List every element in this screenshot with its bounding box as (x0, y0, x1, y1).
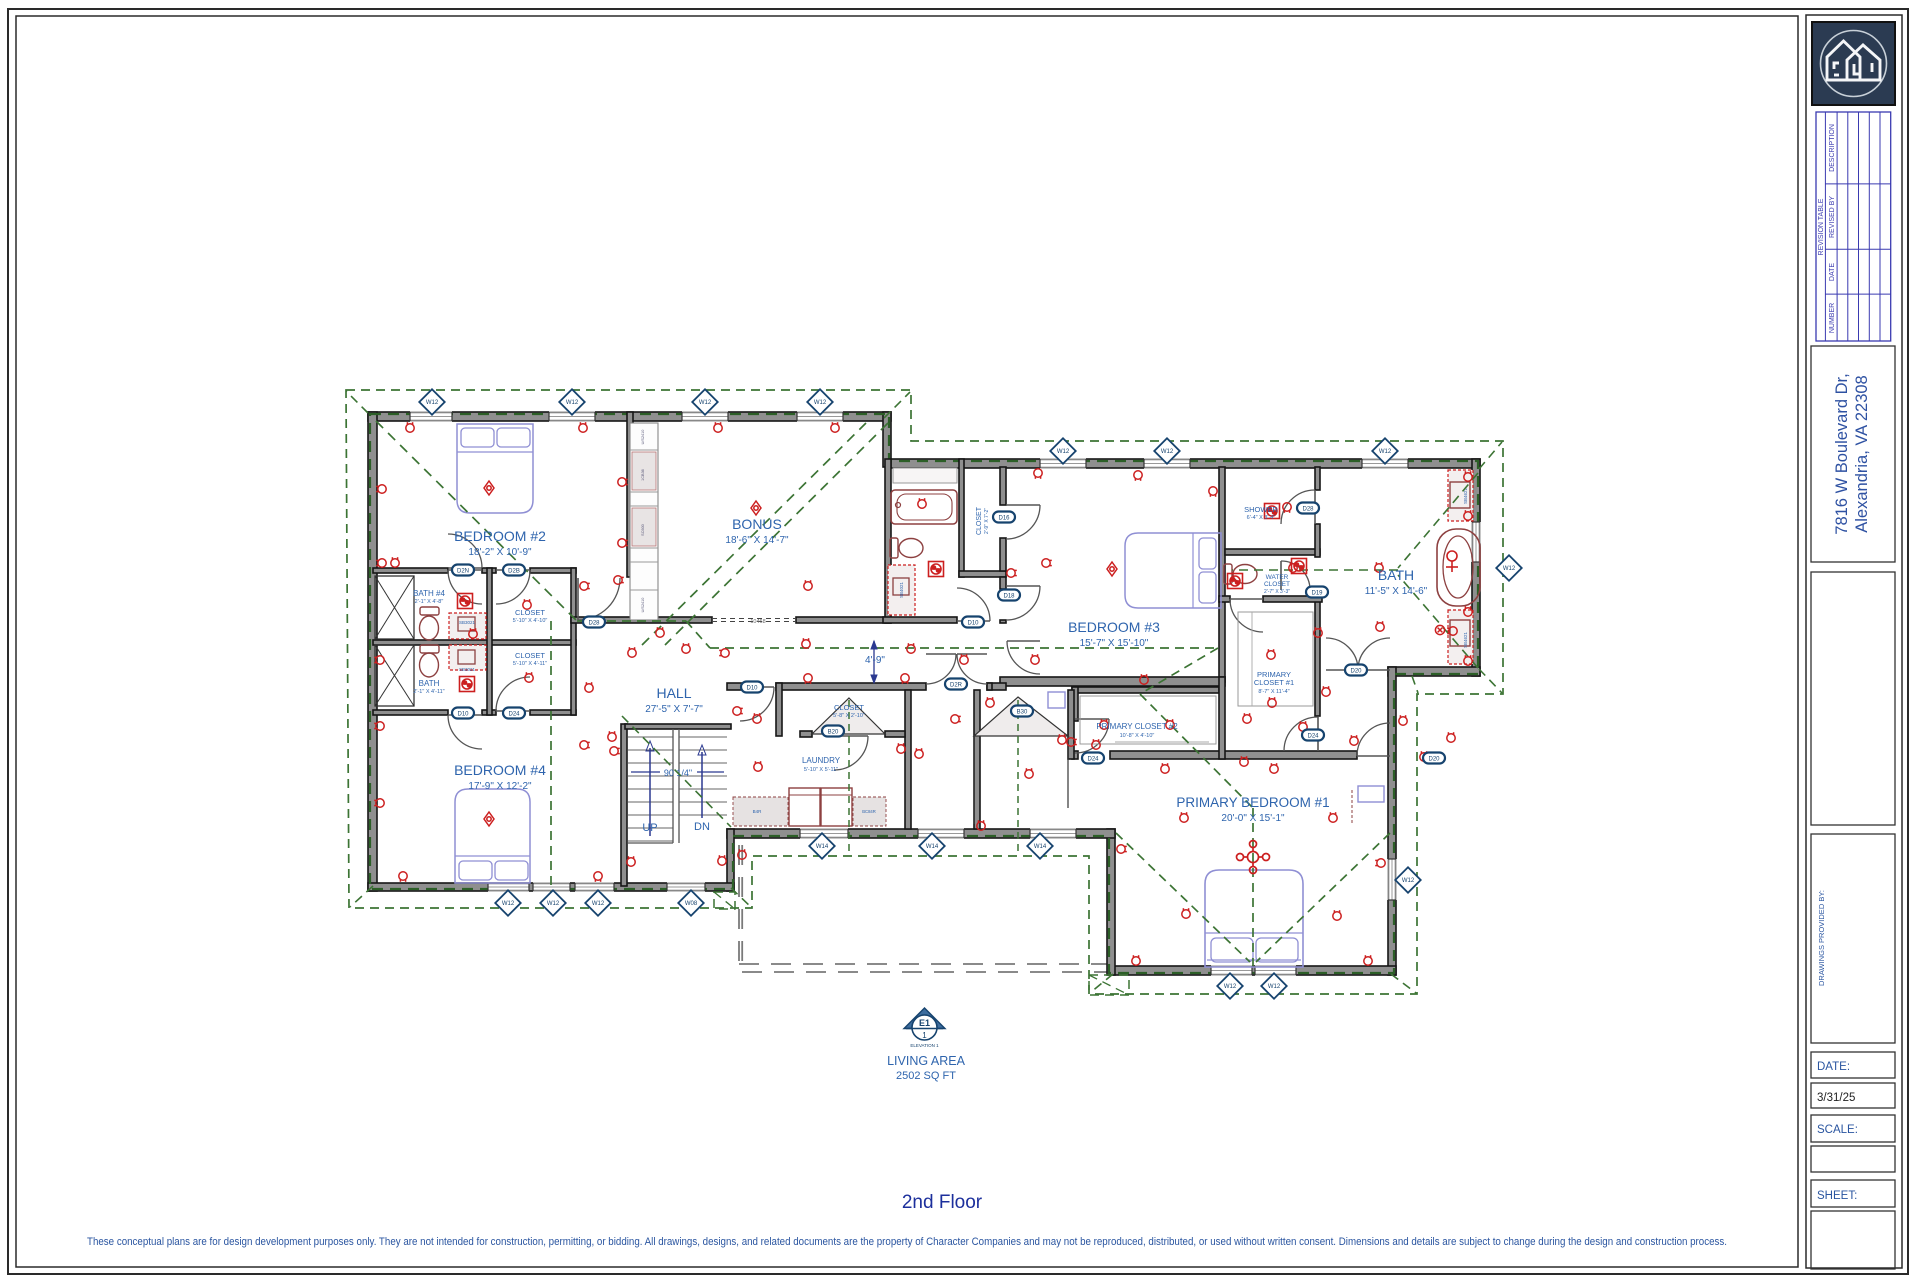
svg-text:W12: W12 (1057, 449, 1070, 455)
svg-text:2502 SQ FT: 2502 SQ FT (896, 1070, 956, 1082)
svg-text:D18: D18 (1003, 594, 1015, 600)
svg-text:BATH: BATH (1378, 567, 1414, 583)
svg-text:E1: E1 (919, 1018, 930, 1028)
svg-text:SHOWER: SHOWER (1244, 505, 1278, 514)
svg-text:W12: W12 (547, 901, 560, 907)
svg-text:B30: B30 (1017, 710, 1028, 716)
svg-text:HALL: HALL (656, 685, 691, 701)
svg-text:W12: W12 (426, 400, 439, 406)
svg-text:2nd Floor: 2nd Floor (902, 1192, 983, 1213)
svg-text:6'-4" X 3'-4": 6'-4" X 3'-4" (1247, 515, 1276, 521)
svg-text:U/S2410: U/S2410 (641, 598, 645, 613)
svg-text:W14: W14 (1034, 844, 1047, 850)
svg-text:W12: W12 (1268, 984, 1281, 990)
svg-text:D19: D19 (1311, 591, 1323, 597)
svg-text:7816 W Boulevard Dr,: 7816 W Boulevard Dr, (1833, 373, 1851, 534)
svg-text:5'-8" X 2'-10": 5'-8" X 2'-10" (833, 713, 865, 719)
svg-text:10468: 10468 (750, 619, 765, 625)
svg-text:18'-2" X 10'-9": 18'-2" X 10'-9" (468, 547, 532, 558)
svg-text:11'-5" X 14'-6": 11'-5" X 14'-6" (1365, 586, 1428, 597)
svg-text:These conceptual plans are for: These conceptual plans are for design de… (87, 1236, 1727, 1248)
svg-text:CLOSET #1: CLOSET #1 (1254, 678, 1294, 687)
svg-text:DN: DN (694, 821, 710, 833)
svg-text:5'-10" X 4'-10": 5'-10" X 4'-10" (513, 618, 548, 624)
svg-text:SB4621: SB4621 (1463, 631, 1468, 648)
svg-text:W14: W14 (816, 844, 829, 850)
svg-text:BEDROOM #3: BEDROOM #3 (1068, 619, 1160, 635)
svg-text:D10: D10 (457, 712, 469, 718)
svg-text:18'-6" X 14'-7": 18'-6" X 14'-7" (725, 535, 789, 546)
svg-text:W12: W12 (1402, 878, 1415, 884)
svg-text:W08: W08 (685, 901, 698, 907)
svg-text:BONUS: BONUS (732, 516, 782, 532)
svg-text:W12: W12 (1224, 984, 1237, 990)
svg-text:W12: W12 (814, 400, 827, 406)
svg-text:BATH: BATH (419, 679, 440, 688)
svg-text:3/31/25: 3/31/25 (1817, 1092, 1855, 1104)
svg-text:SB4021: SB4021 (899, 581, 904, 598)
svg-text:1: 1 (922, 1031, 927, 1040)
svg-text:LIVING AREA: LIVING AREA (887, 1054, 965, 1068)
svg-text:W12: W12 (699, 400, 712, 406)
svg-text:BEDROOM #2: BEDROOM #2 (454, 528, 546, 544)
svg-text:10'-8" X 4'-10": 10'-8" X 4'-10" (1120, 733, 1155, 739)
svg-text:17'-9" X 12'-2": 17'-9" X 12'-2" (468, 781, 532, 792)
svg-text:D10: D10 (967, 621, 979, 627)
svg-text:5'-10" X 5'-11": 5'-10" X 5'-11" (804, 767, 838, 773)
svg-text:W12: W12 (592, 901, 605, 907)
svg-text:15'-7" X 15'-10": 15'-7" X 15'-10" (1080, 638, 1149, 649)
svg-text:UP: UP (642, 822, 657, 834)
svg-text:CLOSET: CLOSET (976, 506, 983, 535)
svg-text:PRIMARY BEDROOM #1: PRIMARY BEDROOM #1 (1176, 795, 1329, 810)
svg-text:BATH #4: BATH #4 (413, 589, 445, 598)
svg-text:2'-1" X 4'-8": 2'-1" X 4'-8" (415, 599, 444, 605)
svg-text:D2N: D2N (457, 569, 469, 575)
svg-text:DATE:: DATE: (1817, 1061, 1850, 1073)
svg-text:D24: D24 (1307, 734, 1319, 740)
svg-text:27'-5" X 7'-7": 27'-5" X 7'-7" (645, 704, 703, 715)
svg-text:REVISED BY: REVISED BY (1829, 196, 1836, 238)
svg-text:D20: D20 (1350, 669, 1362, 675)
svg-text:WATER: WATER (1266, 574, 1289, 581)
svg-text:D28: D28 (588, 621, 600, 627)
svg-text:B20: B20 (828, 730, 839, 736)
svg-text:D28: D28 (1302, 507, 1314, 513)
svg-text:D24: D24 (508, 712, 520, 718)
svg-text:W12: W12 (566, 400, 579, 406)
svg-text:SC600: SC600 (641, 524, 645, 536)
svg-text:BEDROOM #4: BEDROOM #4 (454, 762, 546, 778)
svg-text:D2B: D2B (508, 569, 520, 575)
svg-text:Alexandria, VA 22308: Alexandria, VA 22308 (1853, 375, 1871, 532)
svg-text:W12: W12 (1161, 449, 1174, 455)
svg-text:CLOSET: CLOSET (1264, 581, 1290, 588)
svg-text:W12: W12 (1379, 449, 1392, 455)
svg-text:D20: D20 (1428, 757, 1440, 763)
svg-text:W12: W12 (502, 901, 515, 907)
svg-text:DESCRIPTION: DESCRIPTION (1829, 124, 1836, 172)
svg-text:BC84R: BC84R (862, 809, 876, 814)
svg-text:2'-7" X 3'-3": 2'-7" X 3'-3" (1264, 589, 1290, 595)
svg-text:D10: D10 (746, 686, 758, 692)
svg-text:DRAWINGS PROVIDED BY:: DRAWINGS PROVIDED BY: (1817, 890, 1826, 986)
svg-text:ELEVATION 1: ELEVATION 1 (910, 1043, 939, 1048)
svg-text:20'-0" X 15'-1": 20'-0" X 15'-1" (1221, 813, 1285, 824)
svg-text:W14: W14 (926, 844, 939, 850)
svg-text:D2R: D2R (950, 683, 963, 689)
svg-text:2'-9" X 7'-2": 2'-9" X 7'-2" (984, 508, 990, 534)
svg-text:4'-9": 4'-9" (865, 655, 885, 666)
svg-text:DATE: DATE (1829, 263, 1836, 281)
svg-text:LAUNDRY: LAUNDRY (802, 756, 841, 765)
svg-text:D16: D16 (998, 516, 1010, 522)
svg-text:1CB36: 1CB36 (641, 469, 645, 481)
svg-text:PRIMARY CLOSET #2: PRIMARY CLOSET #2 (1096, 722, 1178, 731)
svg-text:B4R: B4R (753, 809, 763, 814)
svg-text:SB3021: SB3021 (459, 620, 476, 625)
svg-text:CLOSET: CLOSET (515, 651, 545, 660)
svg-text:SHEET:: SHEET: (1817, 1190, 1857, 1202)
svg-text:CLOSET: CLOSET (834, 703, 864, 712)
svg-text:NUMBER: NUMBER (1829, 303, 1836, 333)
svg-text:REVISION TABLE: REVISION TABLE (1818, 198, 1825, 255)
svg-text:SCALE:: SCALE: (1817, 1124, 1858, 1136)
svg-text:U/S2410: U/S2410 (641, 430, 645, 445)
svg-text:8'-7" X 11'-4": 8'-7" X 11'-4" (1258, 689, 1289, 695)
svg-text:5'-10" X 4'-11": 5'-10" X 4'-11" (513, 661, 547, 667)
svg-text:D24: D24 (1087, 757, 1099, 763)
svg-text:CLOSET: CLOSET (515, 608, 545, 617)
svg-text:2'-1" X 4'-11": 2'-1" X 4'-11" (413, 689, 444, 695)
svg-text:W12: W12 (1503, 566, 1516, 572)
svg-text:SB3021: SB3021 (459, 667, 476, 672)
